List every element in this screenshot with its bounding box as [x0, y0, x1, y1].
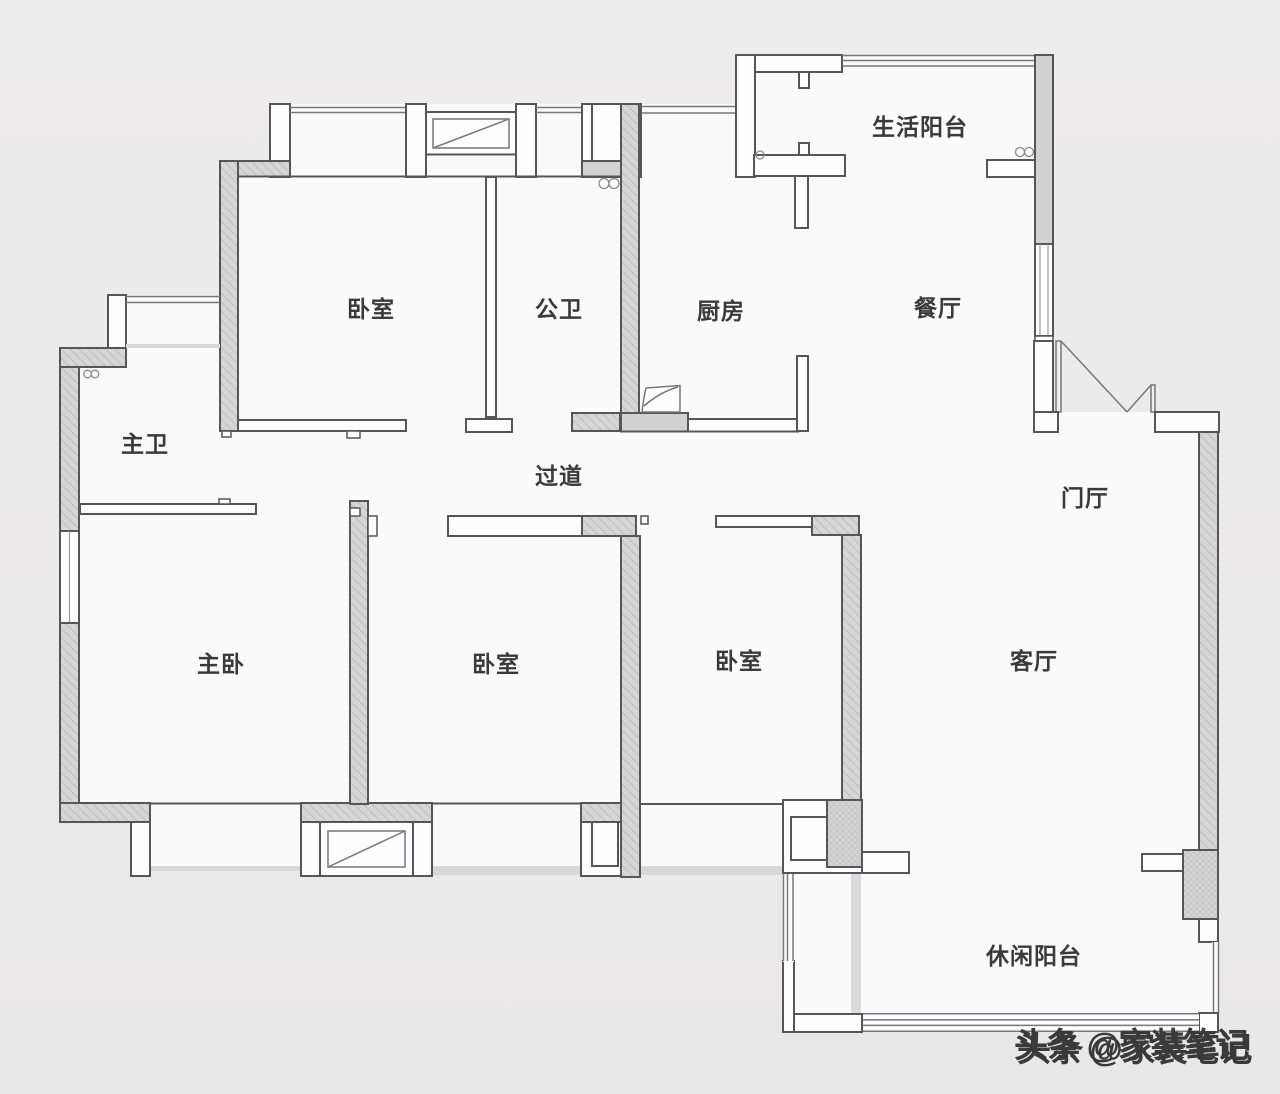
svg-text:头条 @家装笔记: 头条 @家装笔记	[1017, 1031, 1252, 1069]
svg-text:公卫: 公卫	[535, 296, 583, 322]
svg-text:卧室: 卧室	[347, 296, 395, 322]
svg-text:过道: 过道	[535, 463, 583, 489]
svg-text:餐厅: 餐厅	[914, 295, 962, 321]
svg-text:主卧: 主卧	[197, 651, 245, 677]
svg-text:客厅: 客厅	[1010, 648, 1058, 674]
svg-text:主卫: 主卫	[121, 431, 169, 457]
svg-text:卧室: 卧室	[715, 648, 763, 674]
svg-text:门厅: 门厅	[1061, 485, 1109, 511]
svg-text:厨房: 厨房	[697, 298, 745, 324]
svg-text:生活阳台: 生活阳台	[872, 114, 968, 140]
svg-text:休闲阳台: 休闲阳台	[985, 943, 1082, 969]
svg-text:卧室: 卧室	[472, 651, 520, 677]
